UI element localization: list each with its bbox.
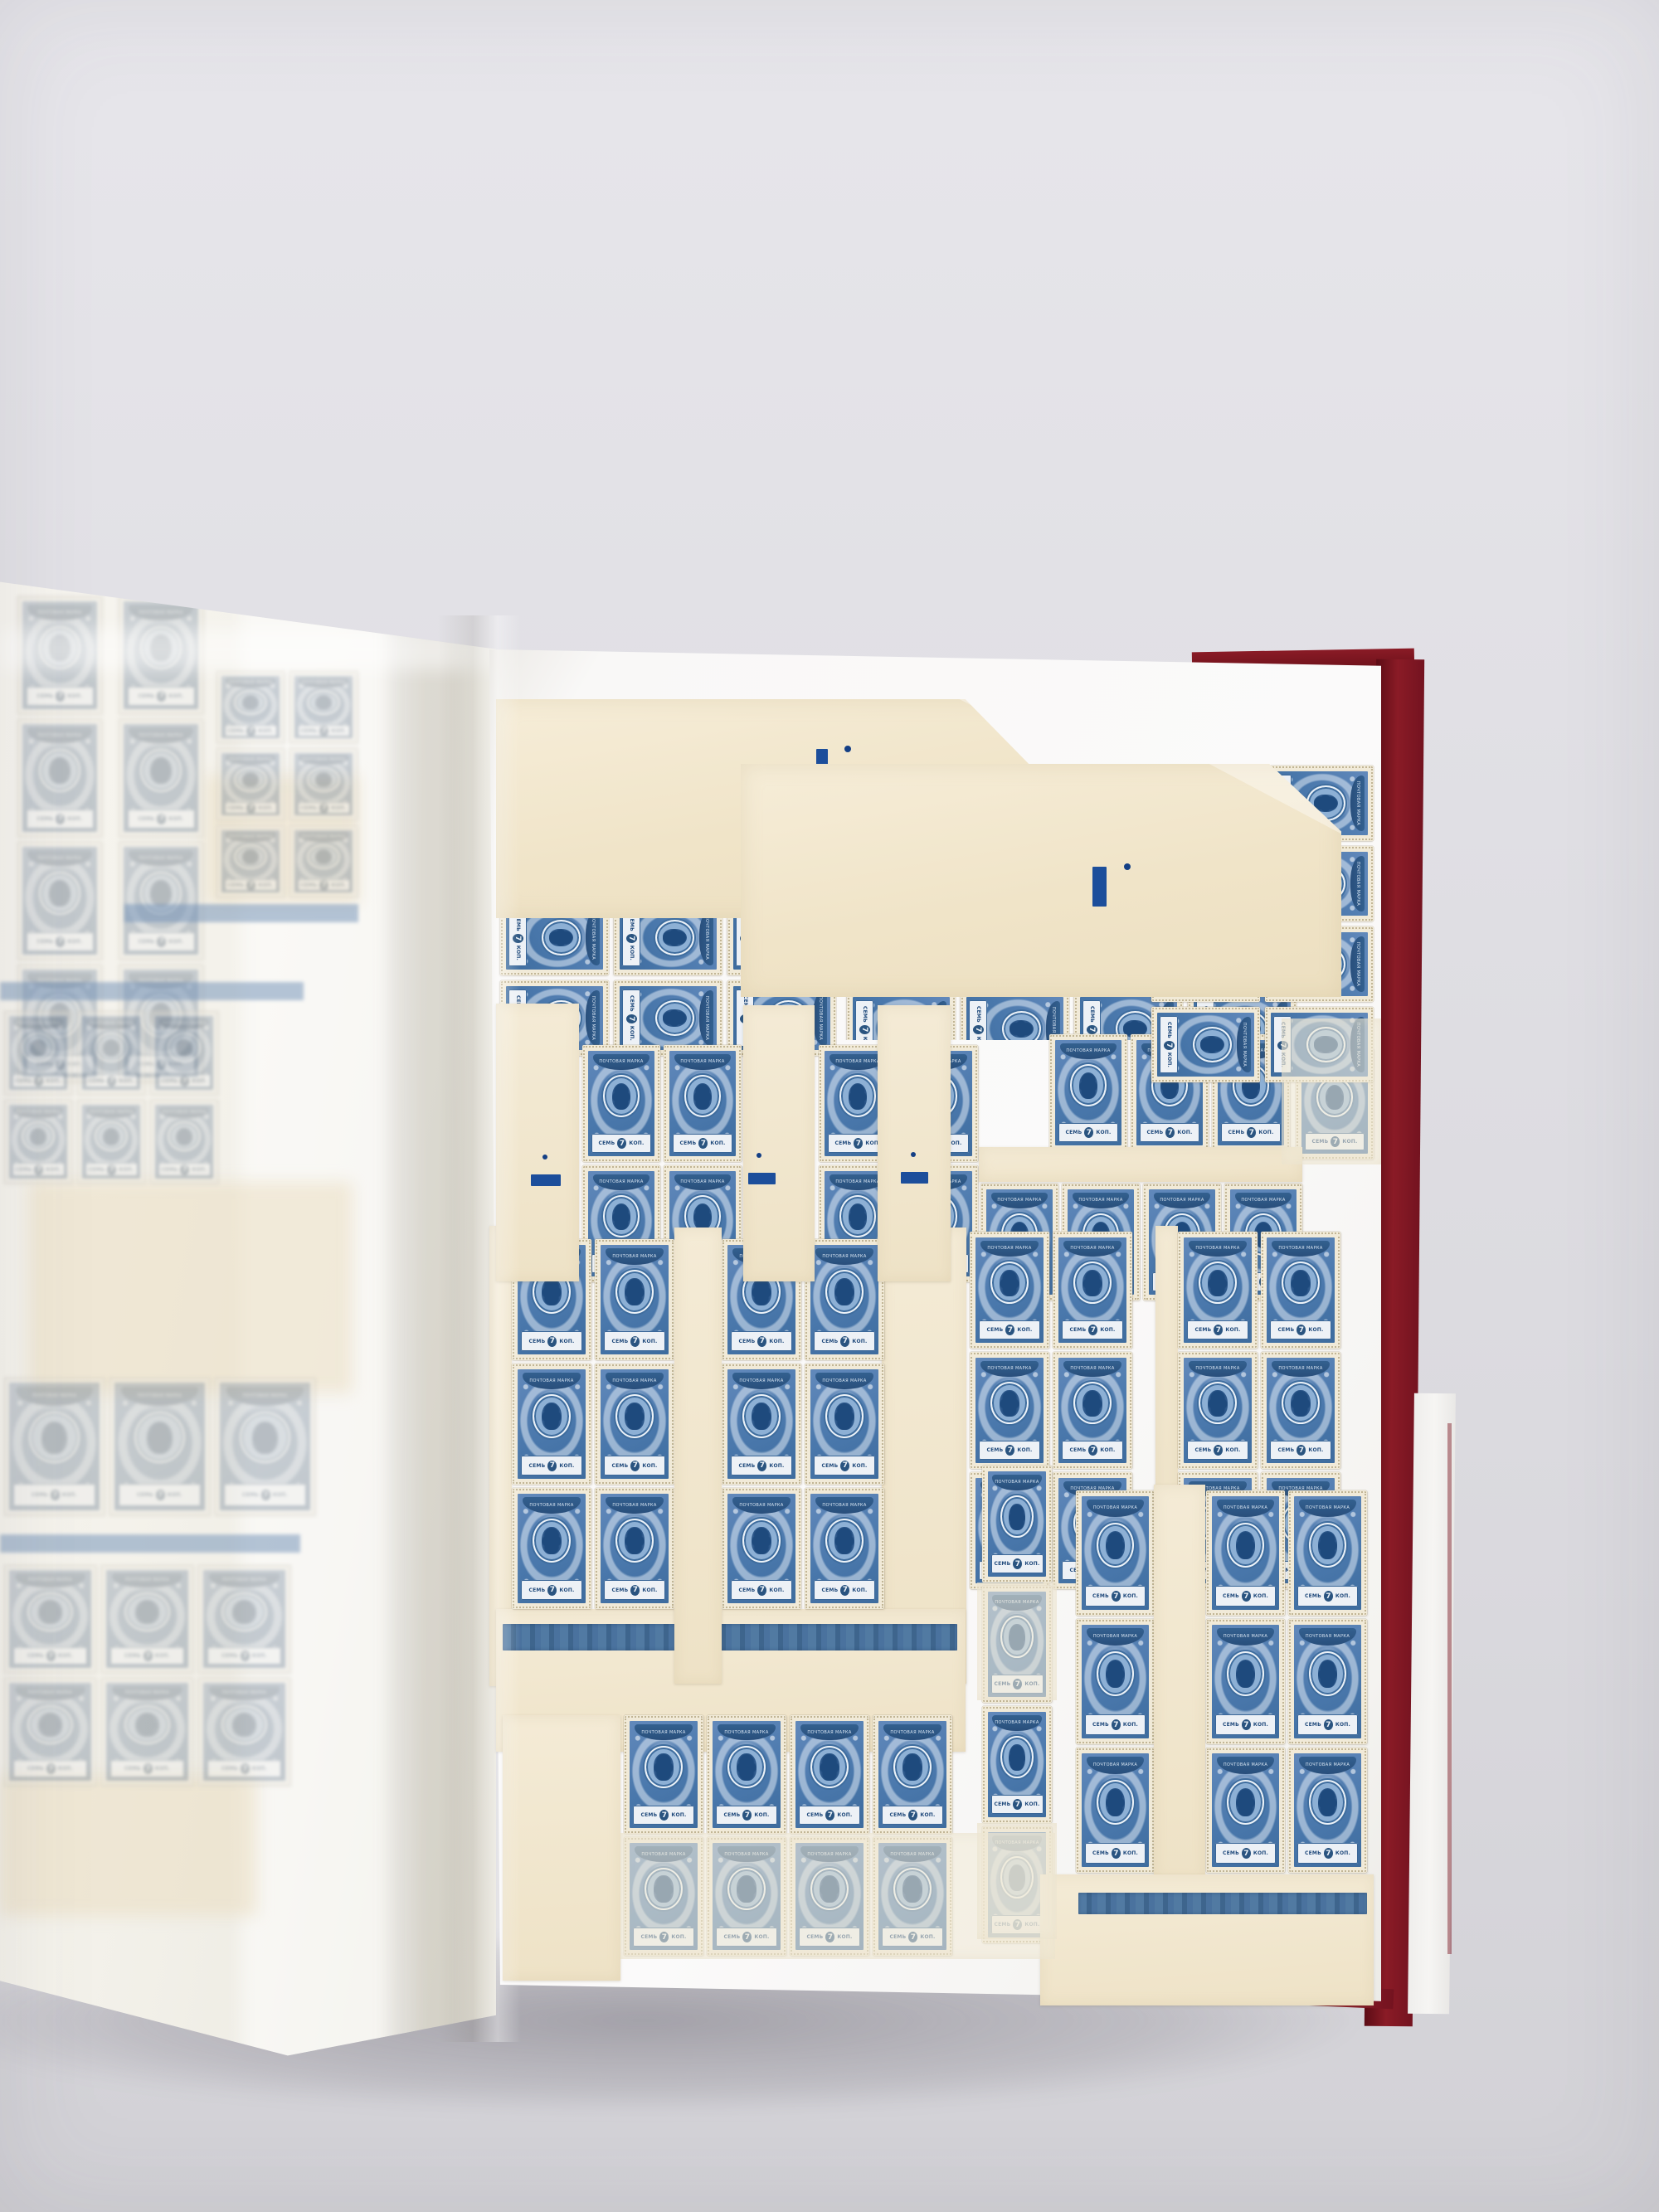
stamp-value-word: СЕМЬ (629, 995, 635, 1012)
stamp-value-word: СЕМЬ (822, 1463, 839, 1469)
stamp: ПОЧТОВАЯ МАРКАСЕМЬ7КОП. (982, 1466, 1052, 1582)
stamp-value-word: СЕМЬ (1092, 1722, 1109, 1728)
imperial-eagle-icon (1082, 1270, 1102, 1296)
stamp-value-number: 7 (1165, 1127, 1175, 1138)
stamp-value-tablet: СЕМЬ7КОП. (604, 1456, 665, 1475)
imperial-eagle-icon (549, 929, 573, 947)
stamp-value-number: 7 (1324, 1848, 1333, 1859)
imperial-eagle-icon (1236, 1531, 1255, 1560)
stamp-value-tablet: СЕМЬ7КОП. (1085, 1586, 1146, 1607)
stamp-value-tablet: СЕМЬ7КОП. (604, 1580, 665, 1600)
stamp-value-unit: КОП. (1225, 1327, 1240, 1333)
stamp-value-number: 7 (698, 1138, 708, 1149)
stamp: ПОЧТОВАЯ МАРКАСЕМЬ7КОП. (1178, 1232, 1258, 1349)
stamp-value-number: 7 (1242, 1719, 1251, 1730)
imperial-eagle-icon (1200, 1036, 1224, 1054)
stamp-engraving: ПОЧТОВАЯ МАРКАСЕМЬ7КОП. (630, 1721, 698, 1828)
imperial-eagle-icon (752, 1278, 771, 1305)
stamp-engraving: ПОЧТОВАЯ МАРКАСЕМЬ7КОП. (810, 1369, 878, 1479)
stamp-cell: ПОЧТОВАЯ МАРКАСЕМЬ7КОП. (1074, 1746, 1156, 1874)
stamp-value-tablet: СЕМЬ7КОП. (731, 1456, 792, 1475)
stamp-engraving: ПОЧТОВАЯ МАРКАСЕМЬ7КОП. (1212, 1625, 1279, 1738)
stamp-oval-frame (1199, 1262, 1237, 1304)
stamp-cell: ПОЧТОВАЯ МАРКАСЕМЬ7КОП. (593, 1362, 676, 1486)
stamp-value-unit: КОП. (1100, 1447, 1115, 1453)
stamp-value-number: 7 (1247, 1127, 1256, 1138)
stamp-oval-frame (810, 1746, 849, 1789)
stamp-value-tablet: СЕМЬ7КОП. (1085, 1843, 1146, 1864)
stamp-value-number: 7 (547, 1461, 557, 1471)
stamp-oval-frame (825, 1519, 864, 1563)
stamp-value-number: 7 (547, 1336, 557, 1347)
stamp-engraving: ПОЧТОВАЯ МАРКАСЕМЬ7КОП. (975, 1358, 1044, 1463)
stamp-value-number: 7 (1324, 1719, 1333, 1730)
stamp-value-word: СЕМЬ (1166, 1022, 1172, 1038)
stamp-value-word: СЕМЬ (995, 1561, 1011, 1567)
stamp: ПОЧТОВАЯ МАРКАСЕМЬ7КОП. (790, 1715, 869, 1834)
stamp: ПОЧТОВАЯ МАРКАСЕМЬ7КОП. (970, 1352, 1049, 1469)
stamp-value-tablet: СЕМЬ7КОП. (814, 1580, 875, 1600)
stamp: ПОЧТОВАЯ МАРКАСЕМЬ7КОП. (970, 1232, 1049, 1349)
stamp-cell: ПОЧТОВАЯ МАРКАСЕМЬ7КОП. (705, 1714, 788, 1835)
stamp-value-tablet: СЕМЬ7КОП. (604, 1331, 665, 1351)
stamp-cell: ПОЧТОВАЯ МАРКАСЕМЬ7КОП. (788, 1714, 871, 1835)
right-page-content: ПОЧТОВАЯ МАРКАСЕМЬ7КОП.ПОЧТОВАЯ МАРКАСЕМ… (0, 0, 1659, 2212)
stamp-value-word: СЕМЬ (1305, 1722, 1321, 1728)
stamp-value-word: СЕМЬ (612, 1463, 629, 1469)
stamp-value-number: 7 (1297, 1445, 1306, 1456)
stamp-value-unit: КОП. (629, 1026, 635, 1041)
stamp-oval-frame (655, 920, 694, 955)
stamp-oval-frame (727, 1746, 766, 1789)
stamp-value-number: 7 (757, 1585, 766, 1596)
stamp-value-word: СЕМЬ (1092, 1593, 1109, 1599)
imperial-eagle-icon (612, 1083, 631, 1110)
sheet-inscription-bar (1078, 1893, 1367, 1914)
stamp-value-number: 7 (1242, 1591, 1251, 1602)
stamp-top-banner: ПОЧТОВАЯ МАРКА (586, 990, 601, 1045)
stamp-value-word: СЕМЬ (1066, 1130, 1082, 1135)
stamp-value-word: СЕМЬ (739, 1587, 756, 1593)
stamp-oval-frame (893, 1746, 932, 1789)
stamp-oval-frame (655, 1000, 694, 1036)
stamp-value-number: 7 (1084, 1127, 1093, 1138)
stamp-value-number: 7 (840, 1461, 849, 1471)
stamp-cell: ПОЧТОВАЯ МАРКАСЕМЬ7КОП. (980, 1464, 1053, 1584)
stamp: ПОЧТОВАЯ МАРКАСЕМЬ7КОП. (595, 1364, 674, 1485)
stamp-value-tablet: СЕМЬ7КОП. (591, 1134, 651, 1153)
stamp-oval-frame (1227, 1780, 1264, 1826)
stamp-value-word: СЕМЬ (599, 1140, 615, 1146)
stamp-value-word: СЕМЬ (987, 1327, 1004, 1333)
stamp-value-word: СЕМЬ (1223, 1593, 1239, 1599)
control-dot-mark (757, 1153, 761, 1158)
stamp-cell: ПОЧТОВАЯ МАРКАСЕМЬ7КОП. (720, 1362, 803, 1486)
stamp: ПОЧТОВАЯ МАРКАСЕМЬ7КОП. (664, 1045, 742, 1162)
stamp-cell: ПОЧТОВАЯ МАРКАСЕМЬ7КОП. (510, 1486, 593, 1611)
stamp-engraving: ПОЧТОВАЯ МАРКАСЕМЬ7КОП. (1082, 1496, 1149, 1610)
stamp-value-tablet: СЕМЬ7КОП. (856, 1000, 873, 1040)
stamp-cell: ПОЧТОВАЯ МАРКАСЕМЬ7КОП. (1204, 1489, 1287, 1617)
stamp-value-number: 7 (626, 934, 637, 943)
stamp-value-number: 7 (840, 1336, 849, 1347)
stamp-value-unit: КОП. (852, 1463, 867, 1469)
stamp-value-tablet: СЕМЬ7КОП. (1085, 1714, 1146, 1735)
stamp-oval-frame (615, 1394, 654, 1438)
stamp: ПОЧТОВАЯ МАРКАСЕМЬ7КОП. (707, 1715, 786, 1834)
stamp-value-tablet: СЕМЬ7КОП. (1221, 1123, 1281, 1142)
stamp-value-unit: КОП. (642, 1587, 657, 1593)
glassine-overlay-haze (977, 1582, 1057, 1700)
stamp-top-banner: ПОЧТОВАЯ МАРКА (813, 990, 828, 1045)
stamp-engraving: ПОЧТОВАЯ МАРКАСЕМЬ7КОП. (1294, 1496, 1361, 1610)
imperial-eagle-icon (663, 1009, 687, 1028)
stamp-value-number: 7 (1297, 1325, 1306, 1335)
stamp-value-number: 7 (757, 1461, 766, 1471)
imperial-eagle-icon (1208, 1270, 1228, 1296)
stamp-value-tablet: СЕМЬ7КОП. (623, 989, 640, 1047)
stamp-value-word: СЕМЬ (822, 1339, 839, 1344)
stamp-engraving: ПОЧТОВАЯ МАРКАСЕМЬ7КОП. (988, 1471, 1046, 1577)
stamp-value-tablet: СЕМЬ7КОП. (673, 1134, 732, 1153)
imperial-eagle-icon (1318, 1660, 1337, 1689)
stamp-engraving: ПОЧТОВАЯ МАРКАСЕМЬ7КОП. (1267, 1237, 1335, 1343)
stamp-value-number: 7 (1088, 1325, 1097, 1335)
imperial-eagle-icon (1082, 1390, 1102, 1417)
stamp-value-number: 7 (1164, 1041, 1175, 1050)
stamp-oval-frame (825, 1394, 864, 1438)
stamp-value-tablet: СЕМЬ7КОП. (633, 1806, 694, 1825)
stamp: ПОЧТОВАЯ МАРКАСЕМЬ7КОП. (512, 1364, 591, 1485)
stamp-value-tablet: СЕМЬ7КОП. (814, 1331, 875, 1351)
stamp-value-word: СЕМЬ (1070, 1327, 1087, 1333)
imperial-eagle-icon (1106, 1660, 1125, 1689)
stamp-oval-frame (742, 1519, 781, 1563)
stamp-value-tablet: СЕМЬ7КОП. (1215, 1586, 1276, 1607)
stamp-cell: ПОЧТОВАЯ МАРКАСЕМЬ7КОП. (1287, 1746, 1369, 1874)
stamp-value-unit: КОП. (769, 1463, 784, 1469)
stamp-value-word: СЕМЬ (1147, 1130, 1164, 1135)
stamp: ПОЧТОВАЯ МАРКАСЕМЬ7КОП. (805, 1239, 884, 1360)
stamp-cell: ПОЧТОВАЯ МАРКАСЕМЬ7КОП. (1176, 1350, 1259, 1471)
stamp-oval-frame (645, 1746, 683, 1789)
stamp-value-tablet: СЕМЬ7КОП. (731, 1580, 792, 1600)
stamp-value-number: 7 (1324, 1591, 1333, 1602)
stamp-engraving: ПОЧТОВАЯ МАРКАСЕМЬ7КОП. (601, 1245, 669, 1354)
stamp-value-number: 7 (1112, 1848, 1121, 1859)
stamp-engraving: ПОЧТОВАЯ МАРКАСЕМЬ7КОП. (1212, 1496, 1279, 1610)
imperial-eagle-icon (849, 1203, 868, 1230)
selvage-strip (503, 1715, 620, 1981)
stamp-value-unit: КОП. (837, 1812, 852, 1818)
stamp-oval-frame (1309, 1523, 1346, 1568)
stamp-value-word: СЕМЬ (862, 1006, 868, 1023)
imperial-eagle-icon (693, 1203, 713, 1230)
stamp-value-unit: КОП. (1225, 1447, 1240, 1453)
stamp-value-tablet: СЕМЬ7КОП. (731, 1331, 792, 1351)
imperial-eagle-icon (625, 1403, 645, 1430)
stamp-value-tablet: СЕМЬ7КОП. (979, 1441, 1040, 1460)
stamp-value-word: СЕМЬ (1195, 1447, 1212, 1453)
stamp-value-tablet: СЕМЬ7КОП. (1160, 1016, 1178, 1073)
stamp-engraving: ПОЧТОВАЯ МАРКАСЕМЬ7КОП. (1212, 1753, 1279, 1867)
stamp-value-number: 7 (513, 934, 523, 943)
stamp-value-number: 7 (630, 1585, 640, 1596)
selvage-strip (1040, 1874, 1374, 2005)
stamp-cell: ПОЧТОВАЯ МАРКАСЕМЬ7КОП. (622, 1714, 705, 1835)
stamp-value-number: 7 (859, 1025, 870, 1034)
stamp-value-unit: КОП. (862, 1037, 868, 1040)
stamp: ПОЧТОВАЯ МАРКАСЕМЬ7КОП. (1049, 1034, 1127, 1151)
stamp-value-number: 7 (1005, 1445, 1014, 1456)
stamp-value-unit: КОП. (710, 1140, 725, 1146)
imperial-eagle-icon (542, 1527, 562, 1554)
stamp-cell: ПОЧТОВАЯ МАРКАСЕМЬ7КОП. (1259, 1350, 1342, 1471)
stamp-value-number: 7 (840, 1585, 849, 1596)
stamp-oval-frame (1193, 1027, 1232, 1062)
stamp-value-word: СЕМЬ (612, 1339, 629, 1344)
stamp-cell: ПОЧТОВАЯ МАРКАСЕМЬ7КОП. (803, 1362, 886, 1486)
stamp-value-unit: КОП. (769, 1587, 784, 1593)
stamp-oval-frame (603, 1075, 640, 1117)
imperial-eagle-icon (1106, 1531, 1125, 1560)
stamp: ПОЧТОВАЯ МАРКАСЕМЬ7КОП. (582, 1045, 660, 1162)
control-dash-mark (901, 1172, 928, 1184)
stamp-value-tablet: СЕМЬ7КОП. (521, 1456, 582, 1475)
stamp-cell: ПОЧТОВАЯ МАРКАСЕМЬ7КОП. (593, 1237, 676, 1362)
stamp-oval-frame (1282, 1382, 1320, 1424)
stamp-engraving: ПОЧТОВАЯ МАРКАСЕМЬ7КОП. (810, 1245, 878, 1354)
stamp-value-unit: КОП. (1253, 1722, 1268, 1728)
stamp-value-unit: КОП. (515, 946, 521, 960)
stamp-engraving: ПОЧТОВАЯ МАРКАСЕМЬ7КОП. (601, 1369, 669, 1479)
stamp-value-tablet: СЕМЬ7КОП. (1140, 1123, 1199, 1142)
stamp: ПОЧТОВАЯ МАРКАСЕМЬ7КОП. (873, 1715, 952, 1834)
stamp-value-word: СЕМЬ (739, 1463, 756, 1469)
stamp-cell: ПОЧТОВАЯ МАРКАСЕМЬ7КОП. (968, 1230, 1051, 1350)
imperial-eagle-icon (1009, 1744, 1025, 1771)
stamp-cell: ПОЧТОВАЯ МАРКАСЕМЬ7КОП. (968, 1350, 1051, 1471)
stamp-oval-frame (839, 1075, 877, 1117)
stamp-value-tablet: СЕМЬ7КОП. (814, 1456, 875, 1475)
stamp-value-unit: КОП. (1123, 1593, 1138, 1599)
stamp-engraving: ПОЧТОВАЯ МАРКАСЕМЬ7КОП. (975, 1237, 1044, 1343)
control-dot-mark (1124, 863, 1131, 870)
stamp-value-word: СЕМЬ (529, 1587, 546, 1593)
photo-open-stamp-album: ПОЧТОВАЯ МАРКАСЕМЬ7КОП.ПОЧТОВАЯ МАРКАСЕМ… (0, 0, 1659, 2212)
stamp-value-unit: КОП. (1096, 1130, 1111, 1135)
stamp-oval-frame (615, 1270, 654, 1314)
stamp-oval-frame (684, 1075, 722, 1117)
stamp-value-unit: КОП. (1123, 1850, 1138, 1856)
imperial-eagle-icon (1236, 1660, 1255, 1689)
stamp-value-unit: КОП. (754, 1812, 769, 1818)
stamp-value-word: СЕМЬ (1223, 1850, 1239, 1856)
stamp-value-word: СЕМЬ (1070, 1447, 1087, 1453)
stamp-value-unit: КОП. (1024, 1561, 1039, 1567)
stamp-cell: ПОЧТОВАЯ МАРКАСЕМЬ7КОП. (1149, 1004, 1262, 1085)
stamp: ПОЧТОВАЯ МАРКАСЕМЬ7КОП. (1288, 1490, 1367, 1616)
imperial-eagle-icon (752, 1403, 771, 1430)
stamp-value-unit: КОП. (1017, 1447, 1032, 1453)
stamp-oval-frame (742, 1394, 781, 1438)
stamp-value-unit: КОП. (642, 1339, 657, 1344)
stamp-value-tablet: СЕМЬ7КОП. (979, 1320, 1040, 1339)
imperial-eagle-icon (834, 1527, 854, 1554)
stamp-value-word: СЕМЬ (1278, 1327, 1295, 1333)
stamp-value-tablet: СЕМЬ7КОП. (1215, 1714, 1276, 1735)
stamp-oval-frame (839, 1195, 877, 1237)
stamp-value-unit: КОП. (642, 1463, 657, 1469)
stamp-oval-frame (1309, 1651, 1346, 1697)
stamp-value-tablet: СЕМЬ7КОП. (1187, 1320, 1248, 1339)
stamp: ПОЧТОВАЯ МАРКАСЕМЬ7КОП. (1206, 1748, 1285, 1873)
stamp: ПОЧТОВАЯ МАРКАСЕМЬ7КОП. (512, 1488, 591, 1609)
stamp-oval-frame (1309, 1780, 1346, 1826)
stamp: ПОЧТОВАЯ МАРКАСЕМЬ7КОП. (1288, 1619, 1367, 1744)
selvage-strip (1154, 1485, 1205, 1881)
stamp-value-tablet: СЕМЬ7КОП. (1215, 1843, 1276, 1864)
stamp-engraving: ПОЧТОВАЯ МАРКАСЕМЬ7КОП. (1082, 1625, 1149, 1738)
imperial-eagle-icon (542, 1278, 562, 1305)
stamp-cell: ПОЧТОВАЯ МАРКАСЕМЬ7КОП. (581, 1043, 662, 1164)
stamp-oval-frame (1227, 1651, 1264, 1697)
stamp: ПОЧТОВАЯ МАРКАСЕМЬ7КОП. (1076, 1490, 1155, 1616)
stamp-cell: ПОЧТОВАЯ МАРКАСЕМЬ7КОП. (871, 1714, 954, 1835)
stamp-cell: ПОЧТОВАЯ МАРКАСЕМЬ7КОП. (593, 1486, 676, 1611)
glassine-overlay-haze (977, 1823, 1057, 1939)
stamp-oval-frame (533, 1519, 571, 1563)
imperial-eagle-icon (612, 1203, 631, 1230)
stamp-value-number: 7 (908, 1810, 917, 1821)
stamp-value-word: СЕМЬ (890, 1812, 907, 1818)
imperial-eagle-icon (1236, 1788, 1255, 1817)
stamp-value-tablet: СЕМЬ7КОП. (991, 1795, 1044, 1814)
stamp-value-word: СЕМЬ (1092, 1850, 1109, 1856)
imperial-eagle-icon (1079, 1072, 1098, 1099)
imperial-eagle-icon (654, 1753, 674, 1780)
stamp-value-unit: КОП. (1253, 1593, 1268, 1599)
imperial-eagle-icon (1000, 1390, 1019, 1417)
stamp-value-number: 7 (659, 1810, 669, 1821)
stamp-cell: ПОЧТОВАЯ МАРКАСЕМЬ7КОП. (662, 1043, 743, 1164)
stamp-top-banner: ПОЧТОВАЯ МАРКА (1350, 775, 1365, 830)
selvage-strip (878, 1005, 951, 1281)
stamp-cell: ПОЧТОВАЯ МАРКАСЕМЬ7КОП. (510, 1362, 593, 1486)
stamp-cell: ПОЧТОВАЯ МАРКАСЕМЬ7КОП. (720, 1486, 803, 1611)
stamp-top-banner: ПОЧТОВАЯ МАРКА (586, 910, 601, 965)
stamp-value-word: СЕМЬ (1089, 1006, 1095, 1023)
stamp-value-word: СЕМЬ (807, 1812, 824, 1818)
stamp-value-tablet: СЕМЬ7КОП. (1297, 1843, 1358, 1864)
stamp-oval-frame (533, 1394, 571, 1438)
stamp-value-unit: КОП. (975, 1037, 981, 1040)
stamp-value-tablet: СЕМЬ7КОП. (716, 1806, 777, 1825)
stamp: ПОЧТОВАЯ МАРКАСЕМЬ7КОП. (805, 1364, 884, 1485)
stamp-oval-frame (1097, 1523, 1134, 1568)
stamp-cell: ПОЧТОВАЯ МАРКАСЕМЬ7КОП. (1287, 1489, 1369, 1617)
stamp-value-unit: КОП. (769, 1339, 784, 1344)
stamp-oval-frame (1000, 1736, 1033, 1778)
glassine-interleaving-sheet (741, 764, 1341, 997)
imperial-eagle-icon (834, 1403, 854, 1430)
stamp-value-number: 7 (1214, 1445, 1223, 1456)
stamp-oval-frame (1073, 1382, 1112, 1424)
stamp-cell: ПОЧТОВАЯ МАРКАСЕМЬ7КОП. (1074, 1489, 1156, 1617)
stamp-value-unit: КОП. (1335, 1850, 1350, 1856)
imperial-eagle-icon (834, 1278, 854, 1305)
stamp-value-tablet: СЕМЬ7КОП. (1062, 1441, 1123, 1460)
stamp-value-number: 7 (626, 1014, 637, 1023)
stamp-value-number: 7 (854, 1138, 863, 1149)
stamp-engraving: ПОЧТОВАЯ МАРКАСЕМЬ7КОП. (727, 1369, 795, 1479)
stamp-value-number: 7 (630, 1336, 640, 1347)
stamp-value-word: СЕМЬ (680, 1140, 697, 1146)
stamp-cell: ПОЧТОВАЯ МАРКАСЕМЬ7КОП. (1074, 1617, 1156, 1746)
imperial-eagle-icon (693, 1083, 713, 1110)
imperial-eagle-icon (752, 1527, 771, 1554)
stamp-oval-frame (990, 1382, 1029, 1424)
stamp-value-unit: КОП. (920, 1812, 935, 1818)
stamp-cell: ПОЧТОВАЯ МАРКАСЕМЬ7КОП. (1051, 1230, 1134, 1350)
stamp-value-tablet: СЕМЬ7КОП. (1297, 1586, 1358, 1607)
stamp-value-number: 7 (617, 1138, 626, 1149)
imperial-eagle-icon (1106, 1788, 1125, 1817)
stamp-top-banner: ПОЧТОВАЯ МАРКА (1350, 936, 1365, 991)
stamp-oval-frame (1227, 1523, 1264, 1568)
stamp-engraving: ПОЧТОВАЯ МАРКАСЕМЬ7КОП. (1055, 1040, 1121, 1145)
stamp-cell: ПОЧТОВАЯ МАРКАСЕМЬ7КОП. (1048, 1033, 1129, 1153)
stamp-value-tablet: СЕМЬ7КОП. (799, 1806, 860, 1825)
stamp-value-word: СЕМЬ (975, 1006, 981, 1023)
stamp-value-unit: КОП. (629, 1140, 644, 1146)
stamp-engraving: ПОЧТОВАЯ МАРКАСЕМЬ7КОП. (601, 1494, 669, 1603)
stamp-oval-frame (1199, 1382, 1237, 1424)
imperial-eagle-icon (902, 1753, 922, 1780)
stamp-value-unit: КОП. (559, 1339, 574, 1344)
stamp-value-tablet: СЕМЬ7КОП. (970, 1000, 987, 1040)
sheet-inscription-bar (503, 1624, 957, 1650)
stamp-value-tablet: СЕМЬ7КОП. (1270, 1320, 1331, 1339)
stamp-value-unit: КОП. (629, 946, 635, 960)
stamp-value-tablet: СЕМЬ7КОП. (991, 1554, 1044, 1573)
stamp-value-unit: КОП. (1308, 1447, 1323, 1453)
stamp-value-number: 7 (757, 1336, 766, 1347)
stamp-value-number: 7 (1242, 1848, 1251, 1859)
stamp-value-unit: КОП. (1335, 1722, 1350, 1728)
imperial-eagle-icon (663, 929, 687, 947)
stamp-value-tablet: СЕМЬ7КОП. (1270, 1441, 1331, 1460)
imperial-eagle-icon (1291, 1270, 1311, 1296)
stamp-engraving: ПОЧТОВАЯ МАРКАСЕМЬ7КОП. (1058, 1358, 1126, 1463)
stamp-oval-frame (1073, 1262, 1112, 1304)
stamp-engraving: ПОЧТОВАЯ МАРКАСЕМЬ7КОП. (878, 1721, 946, 1828)
stamp-value-number: 7 (1112, 1719, 1121, 1730)
imperial-eagle-icon (1208, 1390, 1228, 1417)
stamp-value-tablet: СЕМЬ7КОП. (521, 1580, 582, 1600)
stamp-value-number: 7 (1088, 1445, 1097, 1456)
stamp-value-unit: КОП. (1308, 1327, 1323, 1333)
stamp-value-tablet: СЕМЬ7КОП. (1187, 1441, 1248, 1460)
stamp-value-word: СЕМЬ (1223, 1722, 1239, 1728)
stamp-value-unit: КОП. (1166, 1053, 1172, 1067)
stamp: ПОЧТОВАЯ МАРКАСЕМЬ7КОП. (1053, 1352, 1132, 1469)
imperial-eagle-icon (625, 1278, 645, 1305)
stamp-value-number: 7 (630, 1461, 640, 1471)
control-dash-mark (748, 1173, 776, 1184)
stamp-engraving: ПОЧТОВАЯ МАРКАСЕМЬ7КОП. (1267, 1358, 1335, 1463)
stamp-value-unit: КОП. (1258, 1130, 1273, 1135)
